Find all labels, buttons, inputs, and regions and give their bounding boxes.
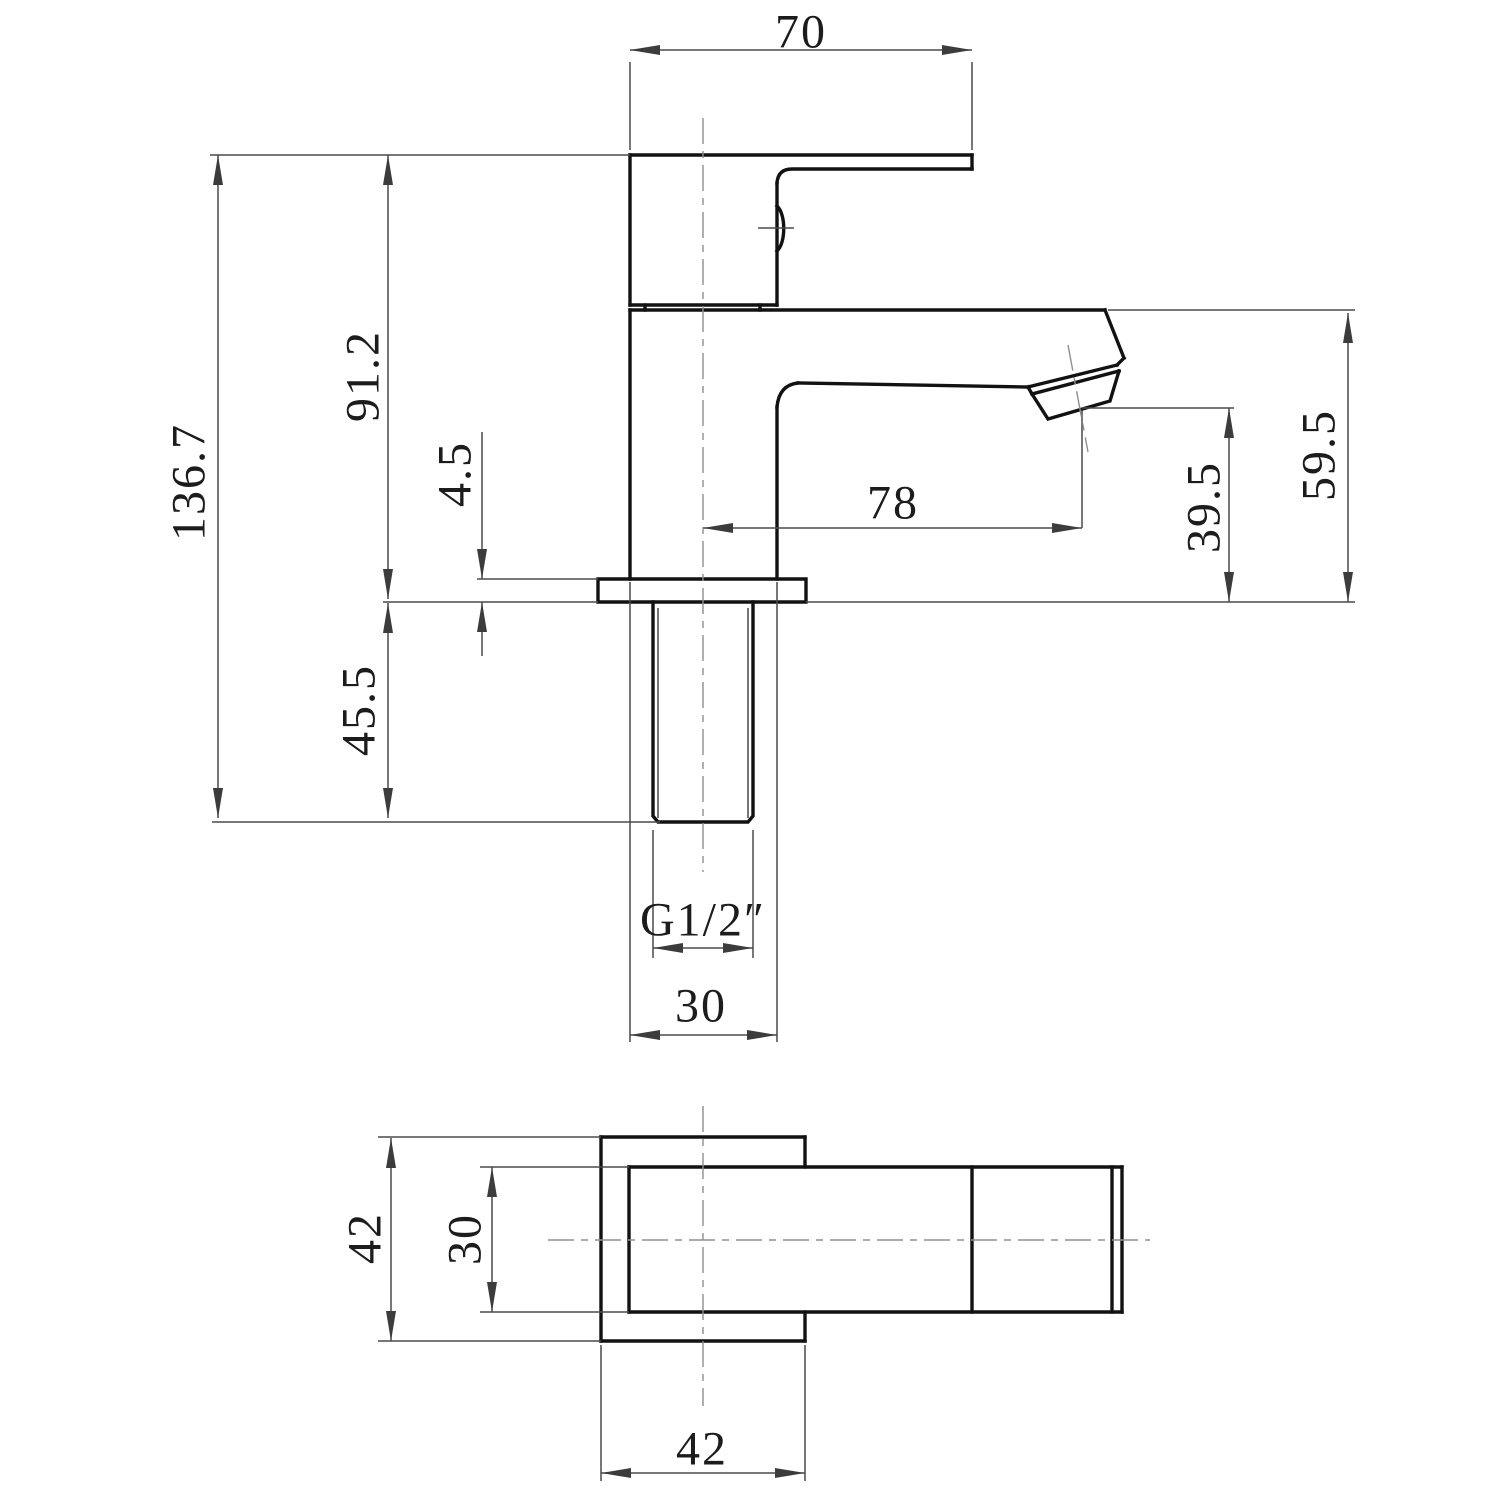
dimension-arrow	[386, 1138, 396, 1168]
outline-path	[777, 169, 972, 183]
dimension-arrow	[477, 549, 487, 579]
dimension-label: 78	[867, 477, 919, 530]
dimension-arrow	[1343, 572, 1353, 602]
dimension-label: 42	[339, 1212, 392, 1264]
outline-path	[1032, 371, 1119, 419]
technical-drawing-svg: 70136.791.24.545.57839.559.5G1/2″3042304…	[0, 0, 1500, 1500]
dimension-label: 70	[775, 6, 827, 59]
dimension-arrow	[383, 603, 393, 633]
dimension-arrow	[477, 602, 487, 632]
dimension-label: 39.5	[1178, 461, 1231, 553]
centerline	[1068, 345, 1088, 452]
drawing-canvas: 70136.791.24.545.57839.559.5G1/2″3042304…	[0, 0, 1500, 1500]
dimension-arrow	[213, 788, 223, 818]
dimension-label: 30	[675, 980, 727, 1033]
dimension-arrow	[213, 155, 223, 185]
dimension-arrow	[1224, 572, 1234, 602]
dimension-arrow	[383, 788, 393, 818]
dimension-arrow	[487, 1282, 497, 1312]
dimension-arrow	[630, 45, 660, 55]
dimension-arrow	[942, 45, 972, 55]
dimension-label: 59.5	[1293, 409, 1346, 501]
dimension-label: 42	[676, 1423, 728, 1476]
dimension-arrow	[1224, 408, 1234, 438]
dimension-label: 4.5	[429, 441, 482, 507]
dimension-arrow	[1343, 313, 1353, 343]
dimension-label: G1/2″	[640, 894, 766, 947]
dimension-arrow	[775, 1468, 805, 1478]
dimension-arrow	[383, 569, 393, 599]
dimension-arrow	[703, 523, 733, 533]
outline-path	[1105, 310, 1124, 358]
dimension-label: 136.7	[163, 423, 216, 541]
outline-path	[798, 383, 1028, 387]
dimension-arrow	[386, 1311, 396, 1341]
dimension-arrow	[487, 1167, 497, 1197]
dimension-label: 91.2	[337, 330, 390, 422]
dimension-arrow	[601, 1468, 631, 1478]
outline-path	[598, 579, 806, 602]
dimension-arrow	[630, 1030, 660, 1040]
dimension-label: 45.5	[333, 664, 386, 756]
outline-path	[777, 383, 798, 407]
dimension-arrow	[747, 1030, 777, 1040]
dimension-arrow	[1052, 523, 1082, 533]
dimension-arrow	[383, 155, 393, 185]
dimension-label: 30	[439, 1213, 492, 1265]
